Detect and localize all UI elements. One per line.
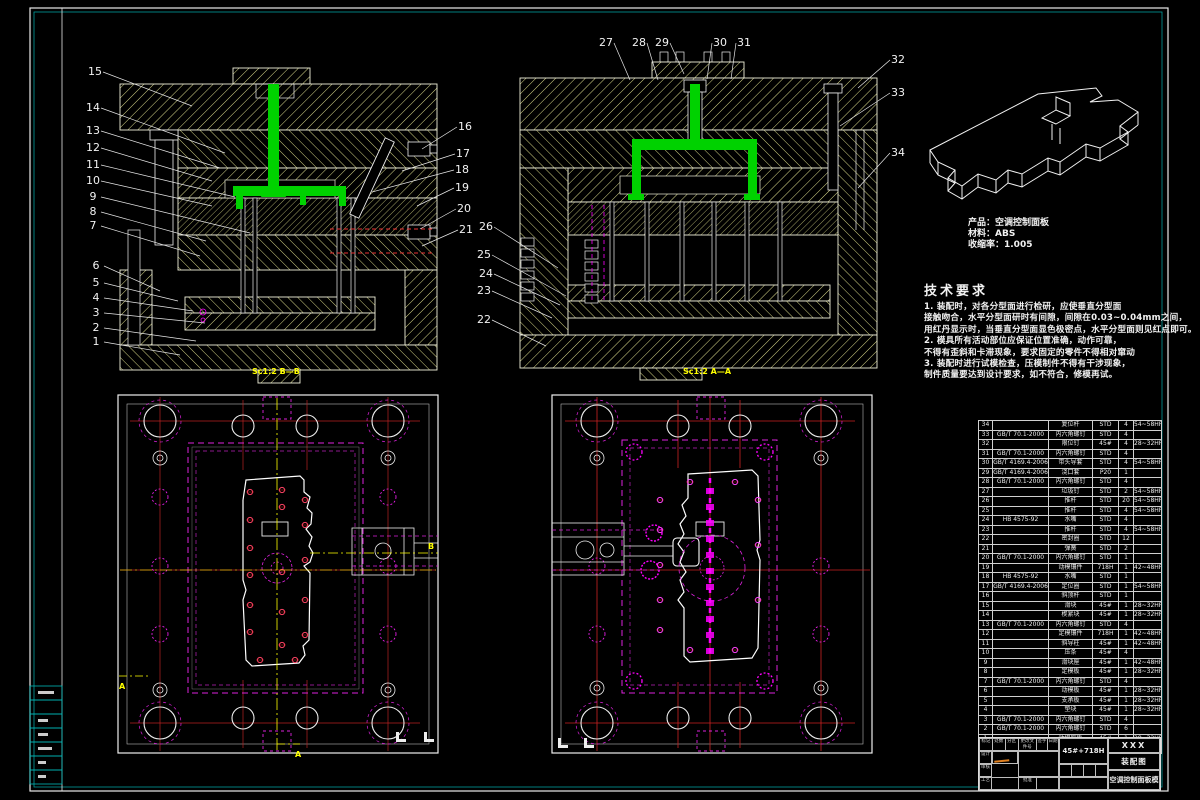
bom-cell: 滑块 — [1049, 601, 1093, 611]
bom-row: 34复位杆STD454~58HRC — [979, 421, 1162, 431]
bom-cell — [993, 687, 1049, 697]
bom-cell: STD — [1093, 544, 1119, 554]
bom-cell: STD — [1093, 725, 1119, 735]
section-view-aa: Sc1:2 A—A — [520, 52, 877, 380]
bom-cell: 楔紧块 — [1049, 611, 1093, 621]
bom-cell: 21 — [979, 544, 993, 554]
bom-cell — [1134, 478, 1162, 488]
balloon-31: 31 — [737, 36, 751, 49]
balloon-13: 13 — [86, 124, 100, 137]
bom-cell: 30 — [979, 459, 993, 469]
bom-cell: 45# — [1093, 649, 1119, 659]
bom-row: 27垃圾钉STD254~58HRC — [979, 487, 1162, 497]
bom-cell: 3 — [979, 715, 993, 725]
balloon-1: 1 — [93, 335, 100, 348]
bom-cell: 4 — [1119, 506, 1134, 516]
balloon-22: 22 — [477, 313, 491, 326]
bom-cell: 17 — [979, 582, 993, 592]
bom-cell: 12 — [1119, 535, 1134, 545]
balloon-28: 28 — [632, 36, 646, 49]
bom-cell: 动模镶件 — [1049, 563, 1093, 573]
bom-cell: 20 — [1119, 497, 1134, 507]
balloon-34: 34 — [891, 146, 905, 159]
bom-cell: 垃圾钉 — [1049, 487, 1093, 497]
bom-cell — [1134, 715, 1162, 725]
bom-cell: 2 — [979, 725, 993, 735]
bom-cell: 54~58HRC — [1134, 459, 1162, 469]
bom-cell — [1134, 649, 1162, 659]
bom-cell: 4 — [1119, 430, 1134, 440]
bom-row: 13GB/T 70.1-2000内六角螺钉STD4 — [979, 620, 1162, 630]
bom-cell: 5 — [979, 696, 993, 706]
bom-cell: 2 — [1119, 487, 1134, 497]
bom-cell: 内六角螺钉 — [1049, 725, 1093, 735]
bom-row: 12定模镶件718H142~48HRC — [979, 630, 1162, 640]
balloon-21: 21 — [459, 223, 473, 236]
bom-cell: 1 — [1119, 573, 1134, 583]
section-letter-b: B — [428, 542, 434, 551]
bom-cell: 54~58HRC — [1134, 582, 1162, 592]
bom-cell: 水嘴 — [1049, 516, 1093, 526]
drawing-sheet: Sc1:2 B—B — [0, 0, 1200, 800]
balloon-29: 29 — [655, 36, 669, 49]
bom-cell: STD — [1093, 506, 1119, 516]
bom-cell — [1134, 468, 1162, 478]
balloon-20: 20 — [457, 202, 471, 215]
balloon-8: 8 — [90, 205, 97, 218]
bom-cell: GB/T 70.1-2000 — [993, 715, 1049, 725]
bom-cell — [993, 497, 1049, 507]
bom-cell: 13 — [979, 620, 993, 630]
bom-table: 34复位杆STD454~58HRC33GB/T 70.1-2000内六角螺钉ST… — [978, 420, 1162, 754]
bom-cell: 1 — [1119, 592, 1134, 602]
tech-line: 3. 装配时进行试模检查，压模制件不得有干涉现象， — [924, 359, 1196, 370]
bom-cell — [993, 639, 1049, 649]
product-shrinkage: 收缩率：1.005 — [968, 240, 1049, 251]
balloon-17: 17 — [456, 147, 470, 160]
bom-cell: 压条 — [1049, 649, 1093, 659]
bom-cell: 14 — [979, 611, 993, 621]
plan-view-core-side: B A A — [118, 395, 438, 759]
tb-design-label: 设计 — [979, 751, 992, 764]
bom-cell: 45# — [1093, 696, 1119, 706]
bom-cell: 内六角螺钉 — [1049, 620, 1093, 630]
bom-cell: 内六角螺钉 — [1049, 677, 1093, 687]
bom-cell: GB/T 4169.4-2006 — [993, 459, 1049, 469]
bom-cell: STD — [1093, 478, 1119, 488]
bom-cell: 54~58HRC — [1134, 421, 1162, 431]
bom-cell — [1134, 535, 1162, 545]
bom-cell — [993, 668, 1049, 678]
bom-cell: GB/T 70.1-2000 — [993, 449, 1049, 459]
bom-cell: P20 — [1093, 468, 1119, 478]
bom-row: 30GB/T 4169.4-2006带头导套STD454~58HRC — [979, 459, 1162, 469]
bom-cell: 20 — [979, 554, 993, 564]
bom-cell: 内六角螺钉 — [1049, 430, 1093, 440]
bom-cell: 45# — [1093, 658, 1119, 668]
product-name: 产品：空调控制面板 — [968, 218, 1049, 229]
bom-cell — [1134, 554, 1162, 564]
bom-row: 9滑块座45#142~48HRC — [979, 658, 1162, 668]
bom-cell: 28~32HRC — [1134, 706, 1162, 716]
bom-cell: 4 — [1119, 649, 1134, 659]
bom-cell: 54~58HRC — [1134, 497, 1162, 507]
bom-cell: 54~58HRC — [1134, 487, 1162, 497]
bom-cell: 斜顶杆 — [1049, 592, 1093, 602]
bom-cell: 4 — [979, 706, 993, 716]
bom-cell: 内六角螺钉 — [1049, 478, 1093, 488]
tb-drawing-title: 空调控制面板模 — [1108, 770, 1160, 790]
bom-cell: 12 — [979, 630, 993, 640]
bom-cell — [993, 535, 1049, 545]
bom-cell: 718H — [1093, 563, 1119, 573]
bom-row: 31GB/T 70.1-2000内六角螺钉STD4 — [979, 449, 1162, 459]
bom-cell: 1 — [1119, 554, 1134, 564]
bom-cell: 复位杆 — [1049, 421, 1093, 431]
bom-cell: 45# — [1093, 440, 1119, 450]
bom-cell — [993, 601, 1049, 611]
bom-cell: STD — [1093, 620, 1119, 630]
bom-cell: 1 — [1119, 639, 1134, 649]
bom-cell: 6 — [1119, 725, 1134, 735]
balloon-26: 26 — [479, 220, 493, 233]
bom-row: 5支承板45#128~32HRC — [979, 696, 1162, 706]
tb-check-label: 审核 — [979, 764, 992, 777]
balloon-4: 4 — [93, 291, 100, 304]
ejector-pin-holes — [246, 487, 309, 662]
bom-cell: 42~48HRC — [1134, 630, 1162, 640]
bom-row: 22密封圈STD12 — [979, 535, 1162, 545]
bom-cell: 32 — [979, 440, 993, 450]
bom-cell: 浇口套 — [1049, 468, 1093, 478]
bom-cell: 19 — [979, 563, 993, 573]
bom-row: 11斜导柱45#142~48HRC — [979, 639, 1162, 649]
bom-cell: 1 — [1119, 658, 1134, 668]
tech-line: 接触吻合，水平分型面研时有间隙，间隙在0.03~0.04mm之间， — [924, 313, 1196, 324]
bom-cell: 推杆 — [1049, 506, 1093, 516]
bom-cell: 1 — [1119, 601, 1134, 611]
bom-cell: 45# — [1093, 687, 1119, 697]
bom-cell: 推杆 — [1049, 525, 1093, 535]
product-material: 材料：ABS — [968, 229, 1049, 240]
bom-cell: 内六角螺钉 — [1049, 449, 1093, 459]
bom-cell — [993, 563, 1049, 573]
bom-cell: 28~32HRC — [1134, 601, 1162, 611]
bom-cell — [1134, 677, 1162, 687]
section-view-bb: Sc1:2 B—B — [120, 68, 437, 383]
bom-cell: STD — [1093, 715, 1119, 725]
bom-row: 6动模板45#128~32HRC — [979, 687, 1162, 697]
bom-row: 14楔紧块45#128~32HRC — [979, 611, 1162, 621]
tb-blank — [1018, 751, 1059, 777]
tb-doc-type: 装配图 — [1108, 753, 1160, 770]
tb-drawing-code: XXX — [1108, 738, 1160, 753]
bom-row: 33GB/T 70.1-2000内六角螺钉STD4 — [979, 430, 1162, 440]
bom-row: 19动模镶件718H142~48HRC — [979, 563, 1162, 573]
bom-cell: 4 — [1119, 449, 1134, 459]
bom-cell — [1134, 620, 1162, 630]
bom-cell: 1 — [1119, 611, 1134, 621]
bom-cell: STD — [1093, 554, 1119, 564]
bom-row: 32限位钉45#428~32HRC — [979, 440, 1162, 450]
bom-cell: 45# — [1093, 601, 1119, 611]
view-label-aa: Sc1:2 A—A — [683, 367, 732, 376]
bom-cell: GB/T 70.1-2000 — [993, 677, 1049, 687]
bom-cell: 4 — [1119, 516, 1134, 526]
product-info: 产品：空调控制面板 材料：ABS 收缩率：1.005 — [968, 218, 1049, 251]
bom-cell: 54~58HRC — [1134, 506, 1162, 516]
bom-row: 26推杆STD2054~58HRC — [979, 497, 1162, 507]
bom-cell: 4 — [1119, 459, 1134, 469]
bom-table-body: 34复位杆STD454~58HRC33GB/T 70.1-2000内六角螺钉ST… — [979, 421, 1162, 754]
bom-cell: STD — [1093, 421, 1119, 431]
bom-cell: 4 — [1119, 440, 1134, 450]
bom-cell: 718H — [1093, 630, 1119, 640]
bom-cell: 42~48HRC — [1134, 563, 1162, 573]
balloon-9: 9 — [90, 190, 97, 203]
bom-cell: 28~32HRC — [1134, 440, 1162, 450]
balloon-3: 3 — [93, 306, 100, 319]
balloon-19: 19 — [455, 181, 469, 194]
balloon-25: 25 — [477, 248, 491, 261]
bom-cell: STD — [1093, 592, 1119, 602]
bom-cell — [993, 630, 1049, 640]
balloon-5: 5 — [93, 276, 100, 289]
bom-cell: GB/T 4169.4-2006 — [993, 468, 1049, 478]
tech-line: 用红丹显示时，当垂直分型面显色极密点，水平分型面则见红点即可。 — [924, 325, 1196, 336]
bom-cell: 23 — [979, 525, 993, 535]
tb-sheet-row — [1059, 777, 1108, 790]
balloon-12: 12 — [86, 141, 100, 154]
balloon-15: 15 — [88, 65, 102, 78]
bom-cell: 24 — [979, 516, 993, 526]
bom-cell: 内六角螺钉 — [1049, 554, 1093, 564]
bom-cell: 内六角螺钉 — [1049, 715, 1093, 725]
bom-cell: 1 — [1119, 687, 1134, 697]
bom-cell: 弹簧 — [1049, 544, 1093, 554]
bom-cell: 4 — [1119, 478, 1134, 488]
bom-row: 16斜顶杆STD1 — [979, 592, 1162, 602]
bom-cell: 限位钉 — [1049, 440, 1093, 450]
bom-cell: 28~32HRC — [1134, 696, 1162, 706]
bom-cell — [1134, 449, 1162, 459]
section-letter-a: A — [295, 750, 302, 759]
bom-cell — [1134, 430, 1162, 440]
tech-line: 1. 装配时，对各分型面进行检研，应使垂直分型面 — [924, 302, 1196, 313]
balloon-32: 32 — [891, 53, 905, 66]
bom-cell: STD — [1093, 497, 1119, 507]
bom-cell: GB/T 70.1-2000 — [993, 725, 1049, 735]
bom-cell: 11 — [979, 639, 993, 649]
bom-cell: 45# — [1093, 639, 1119, 649]
bom-cell — [993, 696, 1049, 706]
bom-row: 7GB/T 70.1-2000内六角螺钉STD4 — [979, 677, 1162, 687]
bom-row: 28GB/T 70.1-2000内六角螺钉STD4 — [979, 478, 1162, 488]
bom-cell: 42~48HRC — [1134, 658, 1162, 668]
bom-cell: 4 — [1119, 525, 1134, 535]
bom-cell — [993, 544, 1049, 554]
balloon-23: 23 — [477, 284, 491, 297]
bom-cell: GB/T 70.1-2000 — [993, 478, 1049, 488]
bom-cell: 22 — [979, 535, 993, 545]
tech-line: 2. 模具所有活动部位应保证位置准确，动作可靠， — [924, 336, 1196, 347]
bom-cell: 45# — [1093, 611, 1119, 621]
bom-cell: 27 — [979, 487, 993, 497]
balloon-10: 10 — [86, 174, 100, 187]
bom-cell: 动模板 — [1049, 687, 1093, 697]
bom-cell: 定位圈 — [1049, 582, 1093, 592]
plan-view-cavity-side — [552, 395, 872, 753]
bom-cell: 4 — [1119, 620, 1134, 630]
balloon-24: 24 — [479, 267, 493, 280]
bom-row: 4垫块45#128~32HRC — [979, 706, 1162, 716]
bom-cell: GB/T 70.1-2000 — [993, 430, 1049, 440]
cavity-outline — [243, 476, 313, 666]
bom-cell: 1 — [1119, 582, 1134, 592]
bom-cell: 滑块座 — [1049, 658, 1093, 668]
bom-cell: 28~32HRC — [1134, 687, 1162, 697]
bom-cell: 31 — [979, 449, 993, 459]
bom-cell: 16 — [979, 592, 993, 602]
bom-cell: 42~48HRC — [1134, 639, 1162, 649]
bom-row: 2GB/T 70.1-2000内六角螺钉STD6 — [979, 725, 1162, 735]
balloon-33: 33 — [891, 86, 905, 99]
bom-cell — [1134, 516, 1162, 526]
bom-row: 15滑块45#128~32HRC — [979, 601, 1162, 611]
bom-cell: 1 — [1119, 668, 1134, 678]
bom-cell: 1 — [1119, 630, 1134, 640]
bom-cell — [993, 525, 1049, 535]
bom-row: 29GB/T 4169.4-2006浇口套P201 — [979, 468, 1162, 478]
bom-cell: GB/T 70.1-2000 — [993, 620, 1049, 630]
bom-row: 25推杆STD454~58HRC — [979, 506, 1162, 516]
bom-cell: 定模镶件 — [1049, 630, 1093, 640]
bom-cell: 33 — [979, 430, 993, 440]
balloon-16: 16 — [458, 120, 472, 133]
bom-cell — [1134, 592, 1162, 602]
bom-row: 17GB/T 4169.4-2006定位圈STD154~58HRC — [979, 582, 1162, 592]
bom-cell — [993, 487, 1049, 497]
balloon-18: 18 — [455, 163, 469, 176]
bom-cell: 28~32HRC — [1134, 668, 1162, 678]
margin-signature-cells — [30, 686, 62, 784]
bom-cell: 26 — [979, 497, 993, 507]
bom-cell — [1134, 544, 1162, 554]
balloon-14: 14 — [86, 101, 100, 114]
bom-cell: 1 — [1119, 706, 1134, 716]
bom-cell: HB 4575-92 — [993, 516, 1049, 526]
bom-cell: STD — [1093, 535, 1119, 545]
title-block: 标记 处数 分区 更改文件号 签字 日期 设计 审核 工艺 批准 45#+718… — [978, 737, 1161, 791]
bom-cell: 29 — [979, 468, 993, 478]
bom-cell: 9 — [979, 658, 993, 668]
balloon-27: 27 — [599, 36, 613, 49]
bom-row: 10压条45#4 — [979, 649, 1162, 659]
bom-cell — [1134, 573, 1162, 583]
bom-cell: STD — [1093, 582, 1119, 592]
bom-row: 21弹簧STD2 — [979, 544, 1162, 554]
bom-cell: STD — [1093, 525, 1119, 535]
balloon-6: 6 — [93, 259, 100, 272]
tech-requirements-title: 技术要求 — [924, 280, 1196, 299]
bom-cell: STD — [1093, 573, 1119, 583]
tech-lines: 1. 装配时，对各分型面进行检研，应使垂直分型面接触吻合，水平分型面研时有间隙，… — [924, 302, 1196, 382]
balloon-30: 30 — [713, 36, 727, 49]
bom-cell: STD — [1093, 677, 1119, 687]
bom-cell: 34 — [979, 421, 993, 431]
tech-line: 不得有歪斜和卡滞现象，要求固定的零件不得相对窜动 — [924, 348, 1196, 359]
balloon-11: 11 — [86, 158, 100, 171]
bom-cell: STD — [1093, 487, 1119, 497]
bom-cell — [993, 611, 1049, 621]
bom-cell: 1 — [1119, 468, 1134, 478]
bom-cell: GB/T 70.1-2000 — [993, 554, 1049, 564]
bom-cell — [993, 658, 1049, 668]
bom-cell — [993, 421, 1049, 431]
bom-cell: STD — [1093, 449, 1119, 459]
bom-cell: 54~58HRC — [1134, 525, 1162, 535]
bom-cell: STD — [1093, 430, 1119, 440]
bom-cell: 推杆 — [1049, 497, 1093, 507]
technical-requirements: 技术要求 1. 装配时，对各分型面进行检研，应使垂直分型面接触吻合，水平分型面研… — [924, 280, 1196, 382]
bom-cell: 45# — [1093, 668, 1119, 678]
bom-cell — [1134, 725, 1162, 735]
bom-cell — [993, 440, 1049, 450]
balloon-7: 7 — [90, 219, 97, 232]
bom-row: 20GB/T 70.1-2000内六角螺钉STD1 — [979, 554, 1162, 564]
bom-cell: 25 — [979, 506, 993, 516]
bom-row: 23推杆STD454~58HRC — [979, 525, 1162, 535]
balloon-2: 2 — [93, 321, 100, 334]
section-letter-a2: A — [119, 682, 126, 691]
bom-cell: 18 — [979, 573, 993, 583]
bom-cell: 8 — [979, 668, 993, 678]
bom-cell — [993, 592, 1049, 602]
bom-cell: 6 — [979, 687, 993, 697]
bom-cell: 1 — [1119, 696, 1134, 706]
bom-cell: STD — [1093, 516, 1119, 526]
bom-cell: 支承板 — [1049, 696, 1093, 706]
tb-material: 45#+718H — [1059, 738, 1108, 764]
bom-cell — [993, 706, 1049, 716]
bom-cell: HB 4575-92 — [993, 573, 1049, 583]
bom-cell: 7 — [979, 677, 993, 687]
slider-right — [352, 528, 438, 575]
bom-cell: 密封圈 — [1049, 535, 1093, 545]
bom-cell — [993, 506, 1049, 516]
bom-cell: 2 — [1119, 544, 1134, 554]
bom-cell — [993, 649, 1049, 659]
bom-cell: 15 — [979, 601, 993, 611]
bom-cell: 28~32HRC — [1134, 611, 1162, 621]
bom-row: 3GB/T 70.1-2000内六角螺钉STD4 — [979, 715, 1162, 725]
bom-cell: 45# — [1093, 706, 1119, 716]
bom-cell: 4 — [1119, 421, 1134, 431]
bom-cell: 水嘴 — [1049, 573, 1093, 583]
bom-row: 24HB 4575-92水嘴STD4 — [979, 516, 1162, 526]
slider-left — [552, 523, 673, 575]
tech-line: 制件质量要达到设计要求，如不符合，修模再试。 — [924, 370, 1196, 381]
view-label-bb: Sc1:2 B—B — [252, 367, 300, 376]
bom-cell: 4 — [1119, 715, 1134, 725]
bom-cell: 10 — [979, 649, 993, 659]
bom-cell: 斜导柱 — [1049, 639, 1093, 649]
bom-cell: 带头导套 — [1049, 459, 1093, 469]
tb-row-labels: 标记 处数 分区 更改文件号 签字 日期 — [979, 738, 1059, 751]
isometric-part — [930, 88, 1138, 199]
bom-row: 8定模板45#128~32HRC — [979, 668, 1162, 678]
bom-row: 18HB 4575-92水嘴STD1 — [979, 573, 1162, 583]
